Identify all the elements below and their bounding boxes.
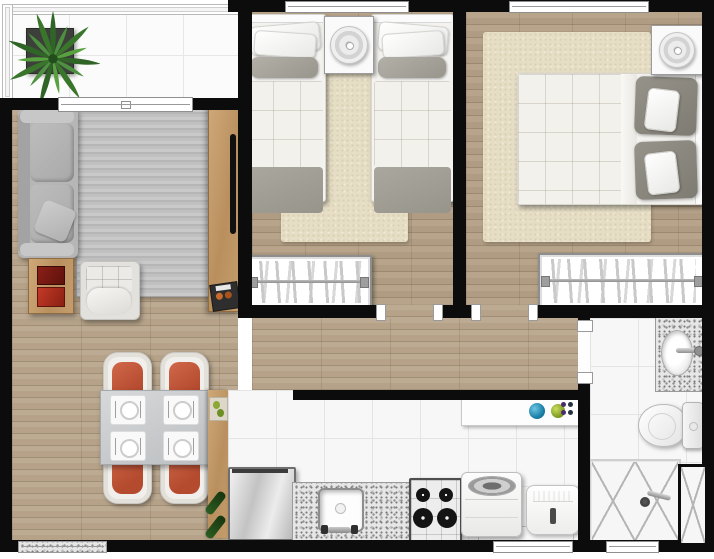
fork-icon (168, 401, 169, 418)
knife-icon (193, 401, 194, 418)
green-bottle (204, 490, 227, 516)
oval-basin (661, 330, 693, 376)
duvet (246, 81, 323, 167)
faucet-handle (351, 525, 358, 534)
washer-seam (465, 499, 518, 500)
pillow-gray (250, 57, 318, 78)
tv (230, 134, 236, 234)
window-living-room (18, 541, 107, 553)
window-bathroom (606, 541, 659, 553)
pillow-white (644, 150, 681, 196)
plate (173, 439, 192, 458)
place-setting (111, 432, 145, 460)
window-double-bedroom (509, 1, 649, 13)
tray-item (224, 291, 232, 299)
door-jamb (577, 320, 593, 332)
kitchen-countertop (292, 482, 411, 541)
door-jamb (471, 304, 481, 321)
wall-living-bedroom1 (238, 0, 252, 318)
wardrobe-twin-room (246, 255, 372, 309)
small-dish (568, 402, 573, 407)
tv-panel (208, 104, 240, 312)
fridge-hinge (232, 469, 288, 473)
knife-icon (140, 401, 141, 418)
burner-small (416, 488, 430, 502)
pillow-gray (378, 57, 446, 78)
sofa-backrest (18, 112, 30, 254)
side-table (28, 258, 74, 314)
armchair-seat (87, 288, 131, 314)
armchair (80, 261, 140, 320)
fruit (217, 409, 224, 417)
fruit-tray (209, 397, 228, 421)
washer-lid (468, 476, 516, 496)
door-opening-double-bedroom (477, 305, 530, 318)
plate (120, 401, 139, 420)
sideboard (208, 390, 228, 538)
fork-icon (115, 401, 116, 418)
twin-bed-right (371, 14, 454, 202)
flush-button (689, 422, 698, 431)
door-jamb (433, 304, 443, 321)
place-setting (164, 432, 198, 460)
double-bed (517, 73, 704, 205)
rail-end (541, 276, 550, 287)
sofa (18, 108, 78, 258)
door-jamb (577, 372, 593, 384)
closet-rail (543, 279, 701, 282)
washing-machine (461, 472, 522, 537)
place-setting (111, 396, 145, 424)
dining-table (100, 390, 210, 465)
decor-tray (209, 281, 240, 312)
toilet-tank (682, 402, 704, 449)
twin-bed-left (243, 14, 326, 202)
potted-plant-icon (6, 8, 100, 102)
plate (120, 439, 139, 458)
hallway-floor (252, 318, 578, 390)
basin-faucet (676, 348, 696, 353)
pillow-white (253, 30, 317, 59)
small-dish (568, 410, 573, 415)
shower-box (589, 459, 681, 543)
shower-arm (647, 490, 671, 501)
faucet-handle (321, 525, 328, 534)
small-dish (561, 410, 566, 415)
door-opening-twin-bedroom (382, 305, 435, 318)
tank-ribs (533, 491, 573, 502)
door-jamb (376, 304, 386, 321)
place-setting (164, 396, 198, 424)
green-bottle (204, 514, 227, 540)
tray-item (215, 292, 223, 300)
gas-cooktop (409, 478, 462, 543)
drain (335, 503, 346, 514)
red-decor (37, 287, 65, 307)
wall-bedroom1-bedroom2 (453, 0, 466, 318)
lamp-icon (330, 26, 368, 64)
balcony-sliding-door (58, 97, 193, 112)
wall-kitchen (293, 390, 578, 400)
knife-icon (193, 438, 194, 455)
toilet-bowl (638, 404, 687, 447)
burner-large (437, 508, 457, 528)
burner-large (413, 508, 433, 528)
lamp-icon (659, 32, 695, 68)
knife-icon (140, 438, 141, 455)
foot-blanket (374, 167, 451, 213)
door-handle (121, 101, 131, 109)
tank-faucet (550, 508, 556, 524)
duct-shaft (678, 464, 708, 546)
sofa-armrest-bottom (20, 243, 74, 256)
window-twin-bedroom (285, 1, 409, 13)
window-service-area (493, 541, 573, 553)
washer-seam (465, 517, 518, 518)
rail-end (360, 277, 369, 288)
pillow-white (381, 30, 445, 59)
refrigerator (228, 467, 296, 541)
pillow-white (644, 87, 681, 133)
tray-book (215, 284, 231, 291)
duvet (518, 74, 622, 204)
door-opening-bathroom (578, 330, 590, 372)
shower-head-icon (640, 497, 650, 507)
wardrobe-double-room (538, 253, 706, 309)
faucet (327, 527, 351, 533)
burner-small (439, 488, 453, 502)
red-book-stack (37, 266, 65, 285)
floor-plan (0, 0, 714, 559)
duvet (374, 81, 451, 167)
fork-icon (168, 438, 169, 455)
laundry-tank (526, 485, 580, 535)
foot-blanket (246, 167, 323, 213)
bathroom-vanity (655, 316, 704, 392)
plate (173, 401, 192, 420)
door-jamb (528, 304, 538, 321)
small-dish (561, 402, 566, 407)
closet-rail (251, 280, 367, 283)
fruit (213, 401, 220, 409)
upper-counter (461, 397, 580, 426)
fork-icon (115, 438, 116, 455)
wall-left (0, 98, 12, 552)
blue-bowl (529, 403, 545, 419)
wall-hallway (238, 305, 702, 318)
sofa-cushion (30, 123, 74, 182)
toilet-seat-ring (648, 413, 676, 440)
